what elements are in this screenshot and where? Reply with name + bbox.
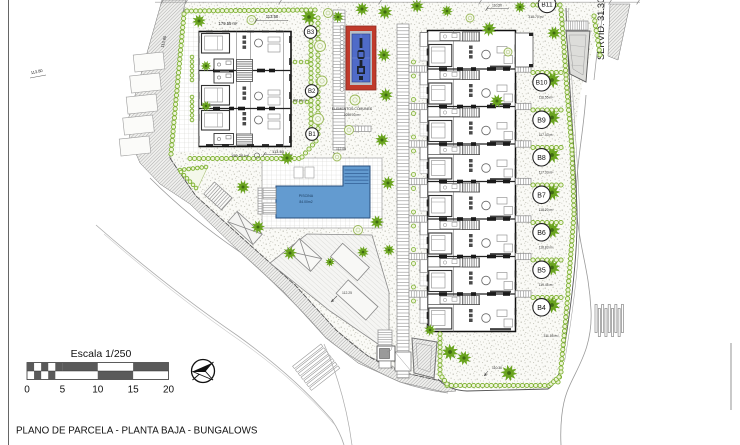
svg-text:15: 15 bbox=[128, 385, 140, 396]
svg-text:113.50: 113.50 bbox=[266, 14, 279, 19]
svg-text:119.45 m²: 119.45 m² bbox=[539, 283, 555, 287]
svg-text:B1: B1 bbox=[308, 132, 316, 138]
svg-text:B10: B10 bbox=[536, 80, 548, 87]
svg-text:159.20 m²: 159.20 m² bbox=[231, 153, 250, 158]
svg-text:5: 5 bbox=[60, 385, 66, 396]
svg-text:318.70 m²: 318.70 m² bbox=[528, 15, 544, 19]
svg-text:1056.00 m²: 1056.00 m² bbox=[344, 113, 362, 117]
svg-text:B9: B9 bbox=[537, 117, 546, 124]
svg-text:113.50: 113.50 bbox=[272, 149, 285, 154]
svg-text:ELEMENTOS COMUNES: ELEMENTOS COMUNES bbox=[332, 107, 373, 111]
svg-text:B6: B6 bbox=[537, 230, 546, 237]
svg-text:PLANO DE PARCELA - PLANTA BAJA: PLANO DE PARCELA - PLANTA BAJA - BUNGALO… bbox=[16, 426, 258, 437]
svg-text:110.50: 110.50 bbox=[492, 4, 502, 8]
svg-text:Escala 1/250: Escala 1/250 bbox=[71, 348, 132, 360]
svg-text:0: 0 bbox=[24, 385, 30, 396]
svg-text:117.03 m²: 117.03 m² bbox=[539, 133, 555, 137]
svg-text:116.55 m²: 116.55 m² bbox=[539, 96, 555, 100]
svg-text:311.95 m²: 311.95 m² bbox=[543, 334, 559, 338]
svg-text:179.55 m²: 179.55 m² bbox=[219, 21, 238, 26]
svg-text:10: 10 bbox=[92, 385, 104, 396]
svg-text:B4: B4 bbox=[537, 305, 546, 312]
svg-text:PISCINA: PISCINA bbox=[299, 194, 314, 198]
svg-text:112.25: 112.25 bbox=[342, 291, 352, 295]
svg-text:84.00m2: 84.00m2 bbox=[299, 200, 312, 204]
svg-text:110.30: 110.30 bbox=[492, 366, 502, 370]
svg-text:117.33 m²: 117.33 m² bbox=[539, 171, 555, 175]
svg-text:B3: B3 bbox=[307, 30, 315, 36]
svg-text:118.20 m²: 118.20 m² bbox=[539, 208, 555, 212]
svg-text:20: 20 bbox=[163, 385, 175, 396]
svg-text:B7: B7 bbox=[537, 192, 546, 199]
svg-text:118.83 m²: 118.83 m² bbox=[539, 246, 555, 250]
svg-text:B5: B5 bbox=[537, 267, 546, 274]
svg-text:112.00: 112.00 bbox=[336, 147, 346, 151]
svg-text:B8: B8 bbox=[537, 155, 546, 162]
svg-text:B2: B2 bbox=[308, 89, 316, 95]
svg-text:800.60 m²: 800.60 m² bbox=[293, 99, 307, 103]
